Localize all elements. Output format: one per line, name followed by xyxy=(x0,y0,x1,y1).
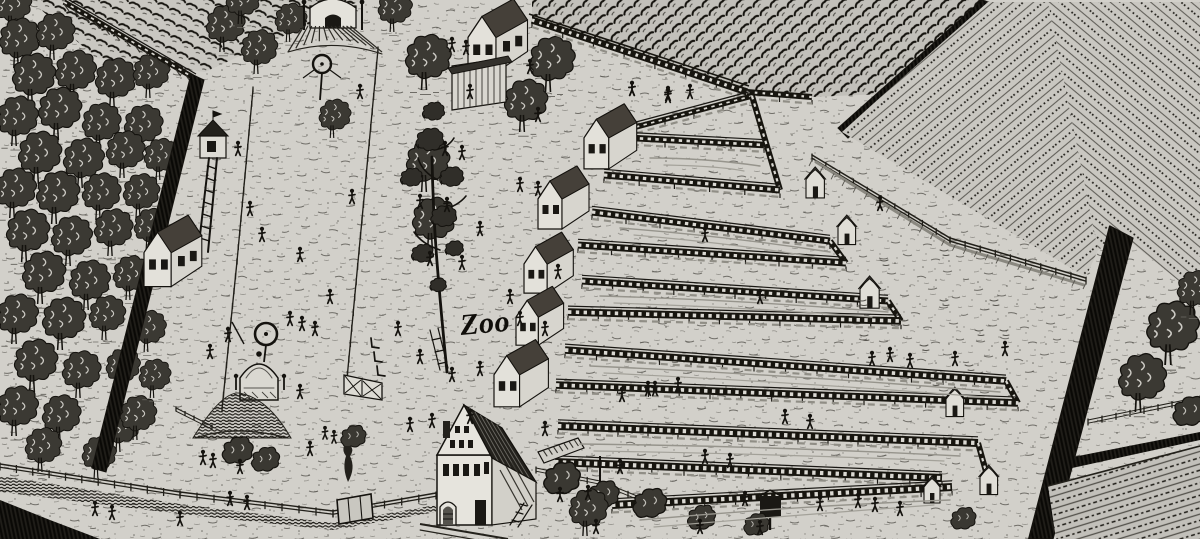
svg-text:Zoo: Zoo xyxy=(458,305,512,342)
